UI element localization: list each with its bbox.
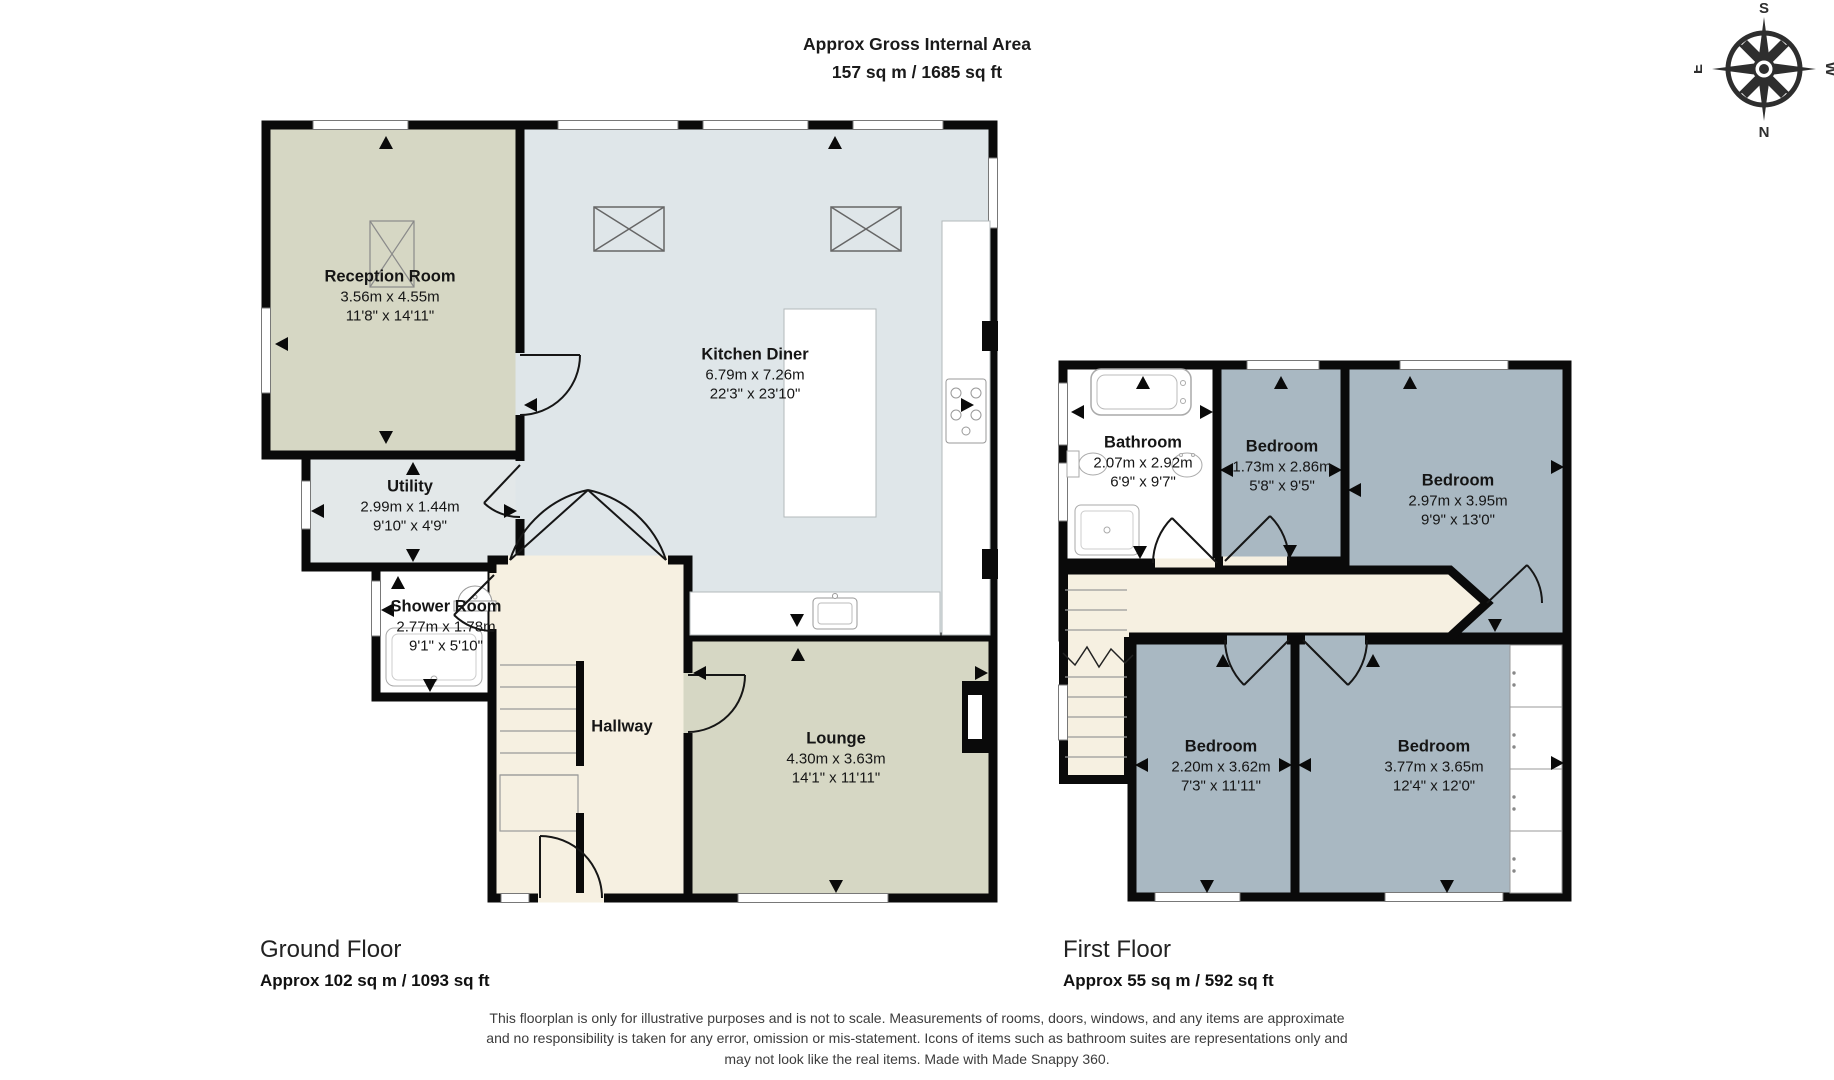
plan-title-line1: Approx Gross Internal Area bbox=[0, 30, 1834, 58]
first-floor-heading: First Floor Approx 55 sq m / 592 sq ft bbox=[1063, 936, 1274, 991]
room-label-hallway: Hallway bbox=[591, 716, 652, 737]
plan-title: Approx Gross Internal Area 157 sq m / 16… bbox=[0, 30, 1834, 86]
plan-title-line2: 157 sq m / 1685 sq ft bbox=[0, 58, 1834, 86]
ground-floor-heading: Ground Floor Approx 102 sq m / 1093 sq f… bbox=[260, 936, 490, 991]
room-label-shower-room: Shower Room 2.77m x 1.78m 9'1" x 5'10" bbox=[391, 596, 502, 655]
room-label-reception-room: Reception Room 3.56m x 4.55m 11'8" x 14'… bbox=[324, 266, 455, 325]
disclaimer-text: This floorplan is only for illustrative … bbox=[0, 1008, 1834, 1069]
first-staircase bbox=[1059, 565, 1133, 784]
room-hallway bbox=[492, 560, 688, 898]
sink-icon bbox=[813, 594, 857, 630]
room-label-kitchen-diner: Kitchen Diner 6.79m x 7.26m 22'3" x 23'1… bbox=[701, 344, 808, 403]
hob-icon bbox=[946, 379, 986, 443]
compass-e: E bbox=[1694, 64, 1706, 74]
room-label-lounge: Lounge 4.30m x 3.63m 14'1" x 11'11" bbox=[786, 728, 885, 787]
shower-square-icon bbox=[1075, 505, 1139, 555]
compass-w: W bbox=[1822, 62, 1834, 77]
room-label-bedroom-2: Bedroom 2.97m x 3.95m 9'9" x 13'0" bbox=[1408, 470, 1507, 529]
kitchen-island bbox=[784, 309, 876, 517]
room-label-bedroom-1: Bedroom 1.73m x 2.86m 5'8" x 9'5" bbox=[1232, 436, 1331, 495]
compass-s: S bbox=[1759, 0, 1769, 17]
room-label-bedroom-3: Bedroom 2.20m x 3.62m 7'3" x 11'11" bbox=[1171, 736, 1270, 795]
room-label-utility: Utility 2.99m x 1.44m 9'10" x 4'9" bbox=[360, 476, 459, 535]
room-label-bedroom-4: Bedroom 3.77m x 3.65m 12'4" x 12'0" bbox=[1384, 736, 1483, 795]
fireplace-icon bbox=[962, 681, 993, 753]
wardrobe-strip bbox=[1510, 645, 1562, 893]
compass-icon: S N E W bbox=[1694, 0, 1834, 140]
compass-n: N bbox=[1759, 124, 1770, 140]
room-label-bathroom: Bathroom 2.07m x 2.92m 6'9" x 9'7" bbox=[1093, 432, 1192, 491]
bathtub-icon bbox=[1091, 369, 1191, 415]
